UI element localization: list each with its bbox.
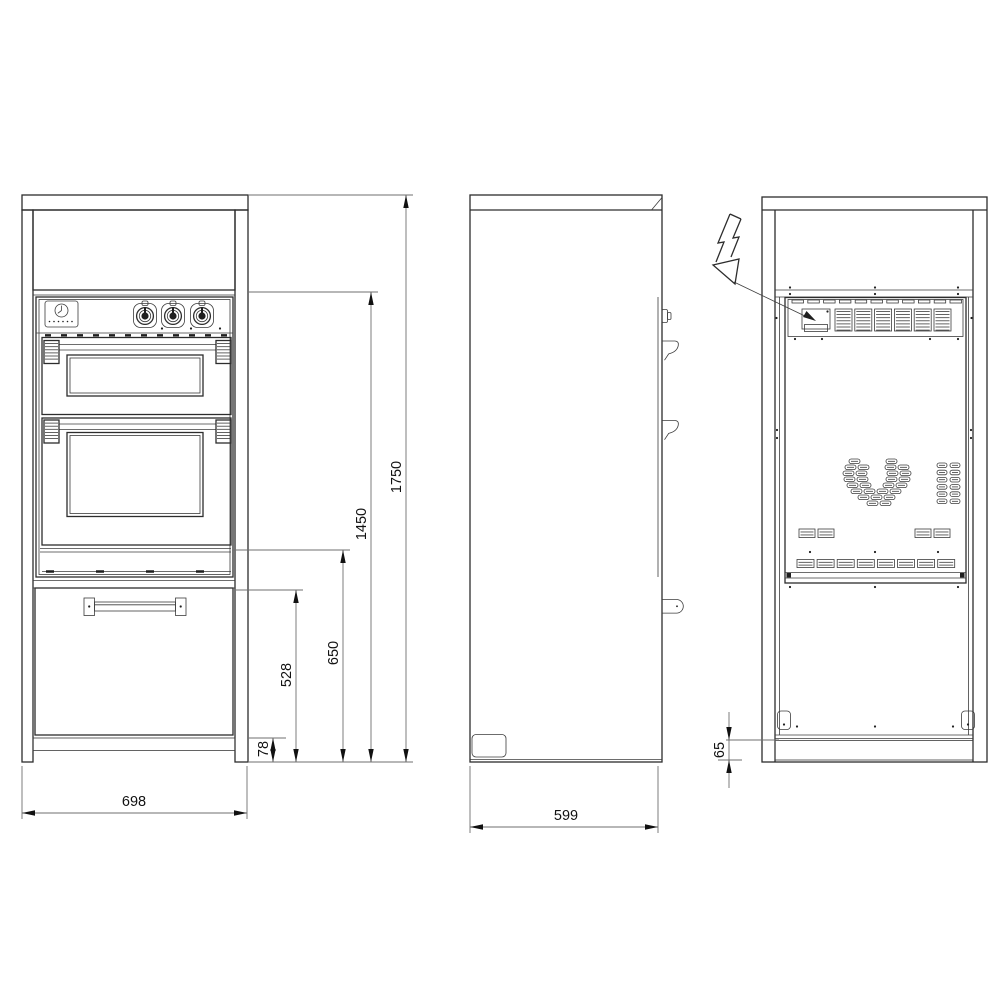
dimension-arrowhead bbox=[403, 749, 408, 762]
screw-dot bbox=[874, 293, 876, 295]
dimension-arrowhead bbox=[403, 195, 408, 208]
appliance-dimension-drawing: 698 599 1750 1450 650 528 78 65 bbox=[0, 0, 1000, 1000]
drawer-handle-bar bbox=[95, 602, 176, 611]
door-handle-end bbox=[216, 341, 231, 364]
rating-label bbox=[472, 735, 506, 758]
dim-height-control-panel: 1450 bbox=[354, 508, 370, 540]
corner-fixing bbox=[787, 573, 792, 578]
clock-buttons bbox=[49, 321, 73, 323]
clock-button bbox=[53, 321, 55, 323]
right-stile-front bbox=[235, 210, 248, 762]
clock-button bbox=[49, 321, 51, 323]
screw-dot bbox=[874, 551, 876, 553]
screw-dot bbox=[874, 286, 876, 288]
dimension-annotations: 698 599 1750 1450 650 528 78 65 bbox=[22, 195, 779, 833]
knob-profile-cap bbox=[668, 313, 672, 320]
vent-grille bbox=[835, 309, 852, 331]
vent-slot bbox=[887, 300, 899, 303]
screw-dot bbox=[783, 723, 785, 725]
dimension-arrowhead bbox=[726, 760, 731, 773]
dim-rear-plinth: 65 bbox=[712, 742, 728, 758]
screw-dot bbox=[957, 293, 959, 295]
dim-height-oven-bottom: 650 bbox=[326, 641, 342, 665]
vent-grille bbox=[934, 309, 951, 331]
screw-dot bbox=[180, 605, 182, 607]
vent-slot bbox=[839, 300, 851, 303]
screw-dot bbox=[821, 338, 823, 340]
clock-button bbox=[67, 321, 69, 323]
screw-dot bbox=[88, 605, 90, 607]
dimension-arrowhead bbox=[293, 590, 298, 603]
plinth-rear bbox=[775, 741, 973, 761]
door-window-lower-inner bbox=[70, 436, 200, 514]
worktop-edge-front bbox=[22, 195, 248, 210]
dimension-arrowhead bbox=[22, 810, 35, 815]
vent-slot bbox=[871, 300, 883, 303]
oven-door-upper bbox=[42, 338, 231, 415]
lower-vent-slots bbox=[797, 529, 955, 568]
drawing-canvas: 698 599 1750 1450 650 528 78 65 bbox=[0, 0, 1000, 1000]
dim-height-total: 1750 bbox=[389, 461, 405, 493]
dimension-arrowhead bbox=[470, 824, 483, 829]
screw-dot bbox=[809, 551, 811, 553]
plinth-front bbox=[33, 738, 235, 751]
door-handle-end bbox=[44, 341, 59, 364]
fan-vent-cluster bbox=[843, 459, 911, 506]
drawer-handle bbox=[84, 598, 186, 616]
terminal-box-tray bbox=[805, 325, 828, 332]
worktop-chamfer bbox=[652, 198, 663, 211]
vent-grille bbox=[875, 309, 892, 331]
screw-dot bbox=[789, 293, 791, 295]
door-handle-profile-upper bbox=[662, 341, 678, 360]
screw-dot bbox=[957, 586, 959, 588]
clock-hand bbox=[58, 311, 62, 314]
screw-dot bbox=[826, 310, 828, 312]
screw-dot bbox=[952, 725, 954, 727]
screw-dot bbox=[957, 338, 959, 340]
leader-arrowhead bbox=[803, 311, 816, 321]
screw-dot bbox=[776, 437, 778, 439]
oven-back-panel bbox=[785, 298, 966, 584]
drawer-handle-screw bbox=[676, 605, 678, 607]
vent-slot bbox=[918, 300, 930, 303]
vent-slot-row-top bbox=[792, 300, 962, 303]
vent-slot bbox=[903, 300, 915, 303]
lightning-bolt-icon bbox=[713, 214, 741, 284]
screw-dot bbox=[937, 551, 939, 553]
vent-slot bbox=[808, 300, 820, 303]
dim-depth: 599 bbox=[554, 808, 578, 824]
vent-grille bbox=[894, 309, 911, 331]
door-window-upper bbox=[67, 355, 203, 396]
door-window-lower bbox=[67, 433, 203, 517]
clock-button bbox=[62, 321, 64, 323]
screw-dot bbox=[789, 586, 791, 588]
control-knob bbox=[191, 301, 214, 328]
dimension-arrowhead bbox=[234, 810, 247, 815]
dimension-arrowhead bbox=[368, 292, 373, 305]
door-window-upper-inner bbox=[70, 358, 200, 393]
oven-door-lower bbox=[42, 418, 231, 545]
screw-dot bbox=[776, 429, 778, 431]
dim-front-width: 698 bbox=[122, 794, 146, 810]
dimension-arrowhead bbox=[368, 749, 373, 762]
screw-dot bbox=[970, 429, 972, 431]
screw-dot bbox=[161, 327, 163, 329]
side-view bbox=[470, 195, 683, 762]
screw-dot bbox=[794, 338, 796, 340]
screw-dot bbox=[219, 327, 221, 329]
cabinet-side-outline bbox=[470, 195, 662, 762]
dimension-arrowhead bbox=[340, 749, 345, 762]
drawer-front bbox=[35, 588, 233, 735]
control-knob bbox=[134, 301, 157, 328]
dimension-arrowhead bbox=[726, 727, 731, 740]
control-knob bbox=[162, 301, 185, 328]
screw-dot bbox=[775, 317, 777, 319]
screw-dot bbox=[796, 725, 798, 727]
vent-grille-row bbox=[835, 309, 951, 331]
top-cabinet-panel bbox=[33, 210, 235, 290]
vent-grille bbox=[914, 309, 931, 331]
screw-dot bbox=[190, 327, 192, 329]
drawer-panel bbox=[35, 588, 233, 735]
door-handle-end bbox=[44, 420, 59, 443]
vent-slot bbox=[792, 300, 804, 303]
screw-dot bbox=[874, 586, 876, 588]
front-view bbox=[22, 195, 248, 762]
electrical-connection-symbol bbox=[713, 214, 816, 321]
dimension-arrowhead bbox=[340, 550, 345, 563]
screw-dot bbox=[957, 286, 959, 288]
vent-grille bbox=[855, 309, 872, 331]
door-handle-profile-lower bbox=[662, 421, 678, 440]
screw-dot bbox=[874, 725, 876, 727]
vent-slot bbox=[824, 300, 836, 303]
clock-display bbox=[45, 301, 78, 327]
clock-button bbox=[71, 321, 73, 323]
vent-slot-grid bbox=[937, 463, 960, 504]
dimension-arrowhead bbox=[293, 749, 298, 762]
corner-fixing bbox=[960, 573, 965, 578]
screw-dot bbox=[789, 286, 791, 288]
screw-dot bbox=[967, 723, 969, 725]
drawer-handle-profile bbox=[662, 600, 683, 614]
vent-slot bbox=[950, 300, 962, 303]
dim-front-plinth: 78 bbox=[256, 741, 272, 757]
screw-dot bbox=[929, 338, 931, 340]
dim-height-drawer-top: 528 bbox=[279, 663, 295, 687]
knob-profile bbox=[662, 310, 668, 323]
screw-dot bbox=[970, 317, 972, 319]
vent-slot bbox=[855, 300, 867, 303]
dimension-arrowhead bbox=[645, 824, 658, 829]
left-stile-front bbox=[22, 210, 33, 762]
rear-view bbox=[88, 197, 987, 762]
clock-button bbox=[58, 321, 60, 323]
vent-slot bbox=[934, 300, 946, 303]
screw-dot bbox=[970, 437, 972, 439]
door-handle-end bbox=[216, 420, 231, 443]
control-panel bbox=[45, 301, 214, 328]
knob-row bbox=[134, 301, 214, 328]
